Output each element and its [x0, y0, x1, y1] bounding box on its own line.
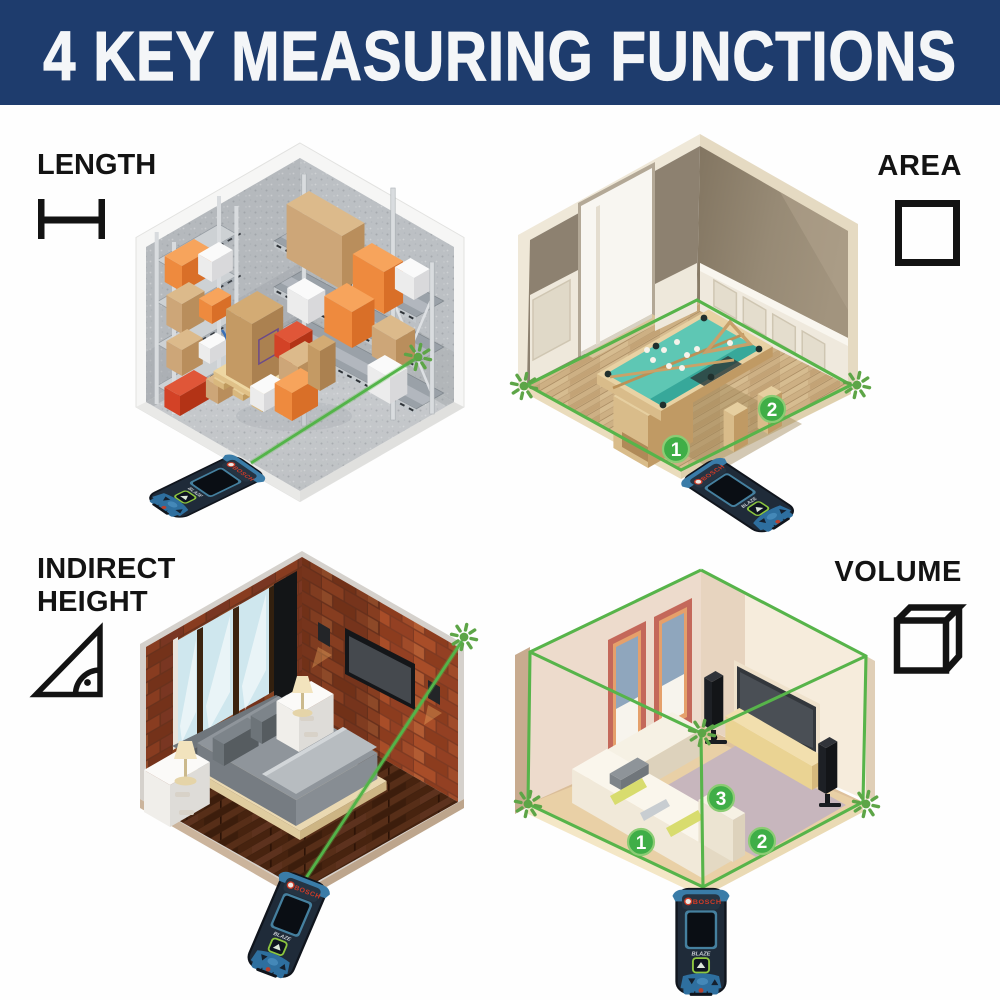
svg-text:2: 2 — [767, 400, 778, 421]
svg-text:LENGTH: LENGTH — [37, 149, 156, 181]
svg-text:AREA: AREA — [877, 150, 962, 182]
svg-text:HEIGHT: HEIGHT — [37, 586, 148, 618]
svg-text:INDIRECT: INDIRECT — [37, 553, 176, 585]
svg-text:3: 3 — [716, 789, 727, 810]
svg-text:VOLUME: VOLUME — [834, 556, 962, 588]
svg-text:2: 2 — [757, 832, 768, 853]
svg-text:4 KEY MEASURING FUNCTIONS: 4 KEY MEASURING FUNCTIONS — [43, 17, 957, 95]
svg-text:1: 1 — [671, 440, 682, 461]
svg-text:1: 1 — [636, 833, 647, 854]
